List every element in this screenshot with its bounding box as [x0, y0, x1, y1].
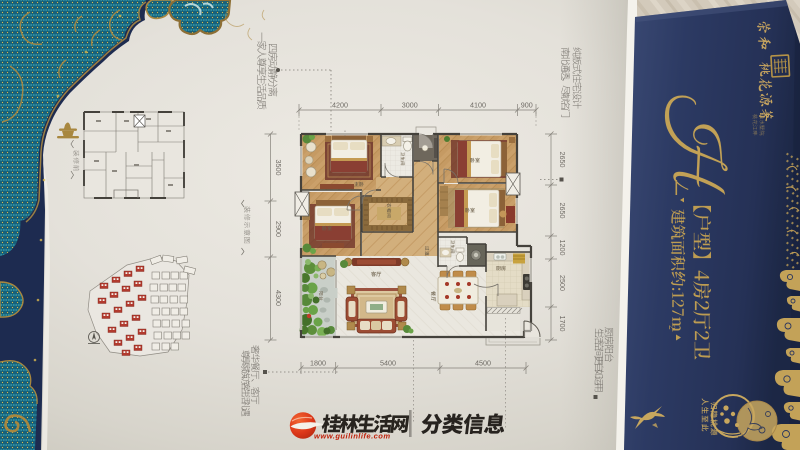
svg-text:900: 900: [521, 101, 533, 110]
svg-text:4300: 4300: [274, 290, 283, 306]
svg-text:3000: 3000: [402, 101, 418, 110]
svg-text:www.guilinlife.com: www.guilinlife.com: [314, 432, 391, 441]
svg-text:4500: 4500: [475, 359, 491, 368]
svg-text:4100: 4100: [470, 101, 486, 110]
svg-text:1700: 1700: [558, 316, 567, 332]
svg-text:3500: 3500: [274, 160, 283, 176]
svg-text:2650: 2650: [558, 203, 567, 219]
svg-text:1200: 1200: [558, 240, 567, 256]
svg-text:1800: 1800: [310, 359, 326, 368]
svg-text:4200: 4200: [332, 101, 348, 110]
svg-text:2650: 2650: [558, 152, 567, 168]
svg-text:2900: 2900: [274, 221, 283, 237]
svg-text:5400: 5400: [380, 359, 396, 368]
svg-text:2500: 2500: [558, 275, 567, 291]
